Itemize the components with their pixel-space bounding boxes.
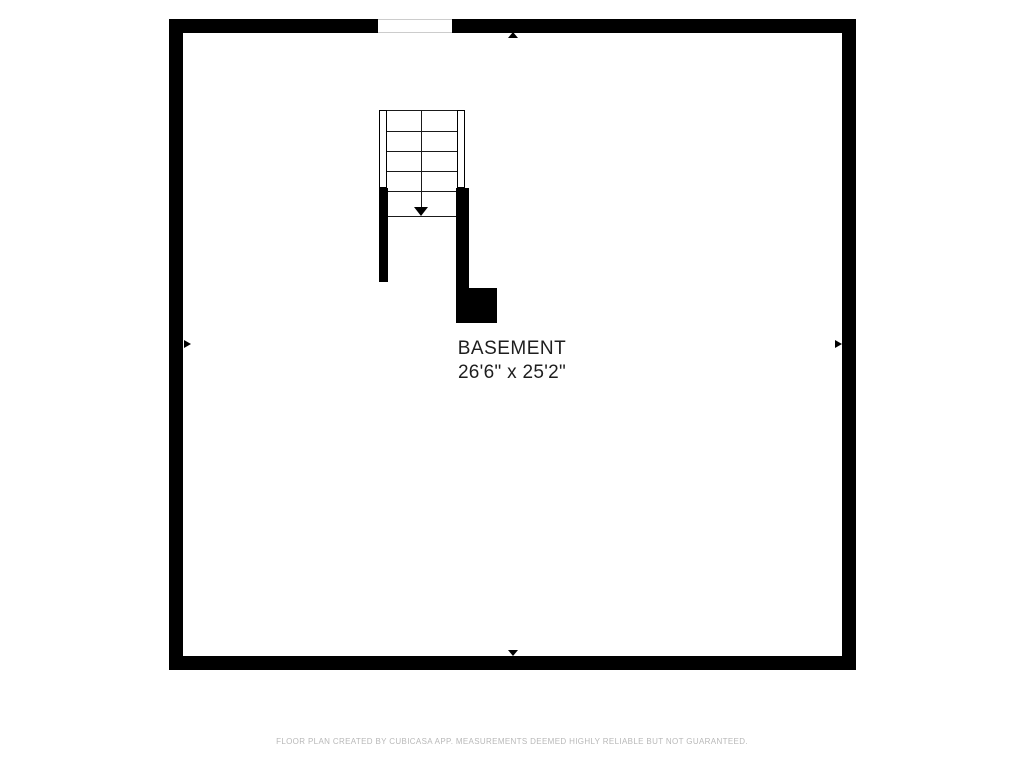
triangle-right-icon — [835, 340, 842, 348]
footer-disclaimer: FLOOR PLAN CREATED BY CUBICASA APP. MEAS… — [0, 737, 1024, 746]
down-arrow-icon — [414, 207, 428, 216]
stair-rail-left — [379, 110, 387, 188]
exterior-wall-right — [842, 19, 856, 670]
stair-tread — [387, 151, 457, 152]
exterior-wall-bottom — [169, 656, 856, 670]
stair-side-wall-left — [379, 188, 388, 282]
stair-tread — [387, 131, 457, 132]
stair-treads — [387, 110, 457, 217]
exterior-wall-top-right-segment — [452, 19, 856, 33]
room-label-block: BASEMENT 26'6" x 25'2" — [362, 336, 662, 385]
triangle-up-icon — [508, 32, 518, 38]
stair-tread — [387, 171, 457, 172]
triangle-right-icon — [184, 340, 191, 348]
triangle-down-icon — [508, 650, 518, 656]
stair-rail-right — [457, 110, 465, 188]
floor-plan-canvas: BASEMENT 26'6" x 25'2" — [0, 0, 1024, 768]
room-dimensions-label: 26'6" x 25'2" — [362, 361, 662, 385]
stair-tread — [387, 191, 457, 192]
stair-direction-line — [421, 110, 422, 207]
exterior-wall-top-left-segment — [169, 19, 378, 33]
stair-side-wall-right — [456, 188, 469, 288]
exterior-wall-left — [169, 19, 183, 670]
structural-column-block — [456, 288, 497, 323]
stairwell-wall-opening — [378, 19, 452, 33]
room-name-label: BASEMENT — [362, 336, 662, 361]
